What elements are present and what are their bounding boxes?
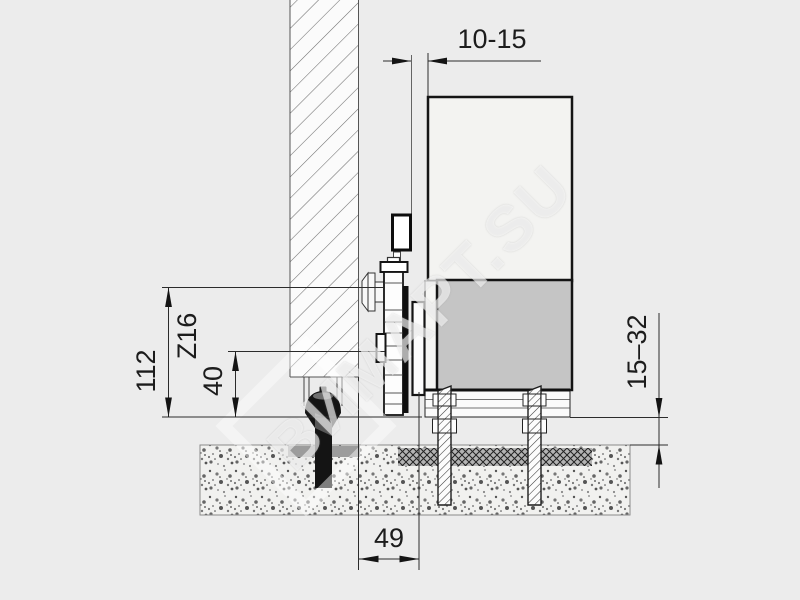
floor-slab	[200, 445, 630, 515]
carriage-body	[384, 272, 403, 415]
wall-bracket	[362, 273, 385, 311]
door-bracket-plate	[413, 302, 425, 395]
door-edge-strip	[425, 281, 437, 389]
carriage-side-block	[377, 334, 386, 362]
door-panel-upper	[428, 97, 572, 281]
dimension-label-112: 112	[131, 326, 161, 416]
door-panel-lower	[437, 280, 572, 390]
dimension-label-15-32: 15–32	[622, 297, 652, 407]
roller-carriage	[362, 55, 425, 415]
hanger-bolt-plate	[393, 215, 411, 250]
door-panel	[425, 97, 572, 417]
dimension-label-49: 49	[349, 523, 429, 553]
technical-drawing	[0, 0, 800, 600]
wall-section	[290, 0, 359, 377]
dimension-label-gap-10-15: 10-15	[432, 24, 552, 54]
mortar-layer	[398, 448, 592, 466]
dimension-label-40: 40	[198, 336, 228, 426]
drawing-canvas: ВИМАРТ.SU 10-15 112 Z16 40 15–32 49	[0, 0, 800, 600]
roller-wheel-edge	[403, 286, 409, 413]
